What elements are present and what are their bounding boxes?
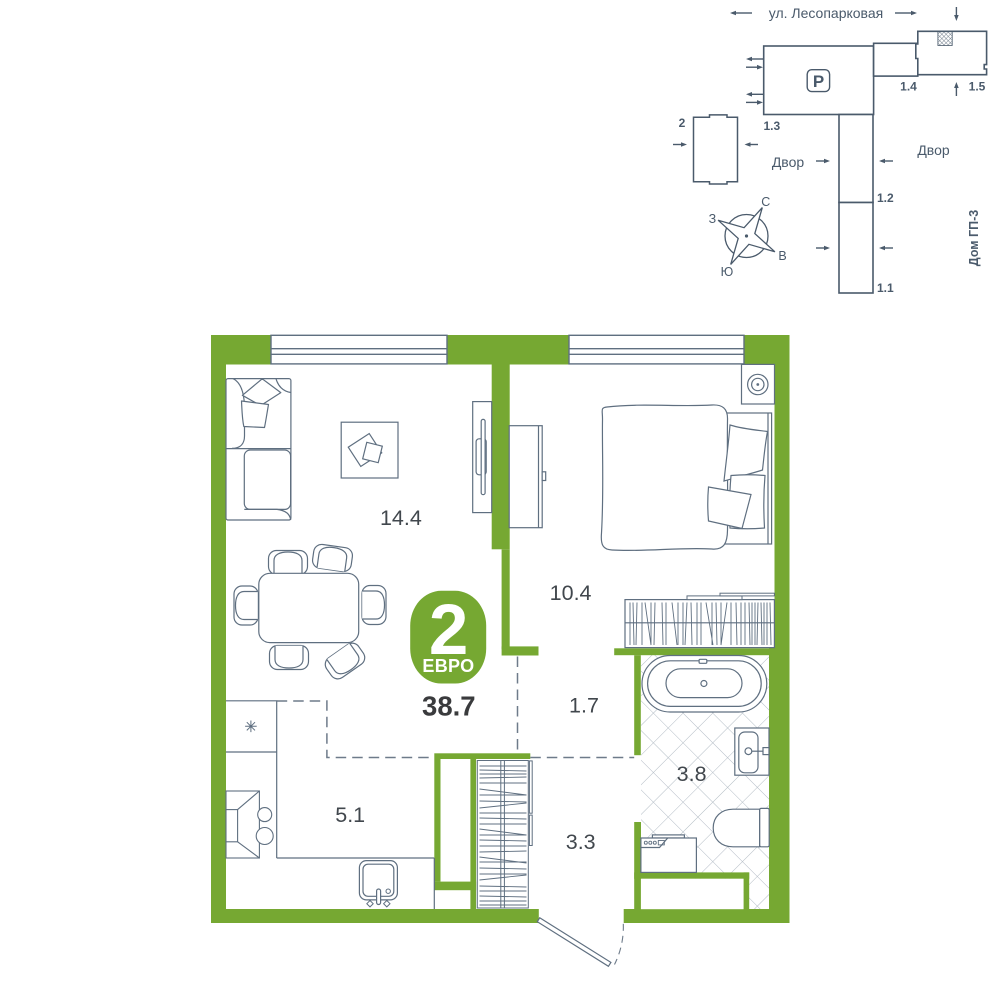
svg-text:ул. Лесопарковая: ул. Лесопарковая (769, 5, 883, 21)
svg-text:2: 2 (679, 116, 686, 130)
svg-text:1.4: 1.4 (900, 80, 917, 94)
svg-text:P: P (813, 72, 824, 91)
svg-text:Ю: Ю (721, 265, 734, 279)
svg-text:ЕВРО: ЕВРО (422, 656, 474, 676)
svg-text:14.4: 14.4 (380, 506, 422, 530)
svg-text:В: В (778, 249, 786, 263)
svg-text:1.3: 1.3 (764, 119, 781, 133)
svg-text:Дом ГП-3: Дом ГП-3 (967, 210, 981, 266)
svg-text:3.3: 3.3 (566, 830, 596, 854)
svg-text:1.1: 1.1 (877, 281, 894, 295)
svg-text:Двор: Двор (772, 154, 805, 170)
svg-text:С: С (761, 195, 770, 209)
svg-text:Двор: Двор (917, 142, 950, 158)
svg-text:38.7: 38.7 (422, 690, 476, 721)
svg-text:5.1: 5.1 (335, 803, 365, 827)
svg-text:1.5: 1.5 (969, 80, 986, 94)
svg-text:3.8: 3.8 (677, 762, 707, 786)
svg-text:З: З (709, 212, 717, 226)
svg-text:10.4: 10.4 (550, 581, 592, 605)
svg-text:1.7: 1.7 (569, 694, 599, 718)
svg-text:1.2: 1.2 (877, 191, 894, 205)
